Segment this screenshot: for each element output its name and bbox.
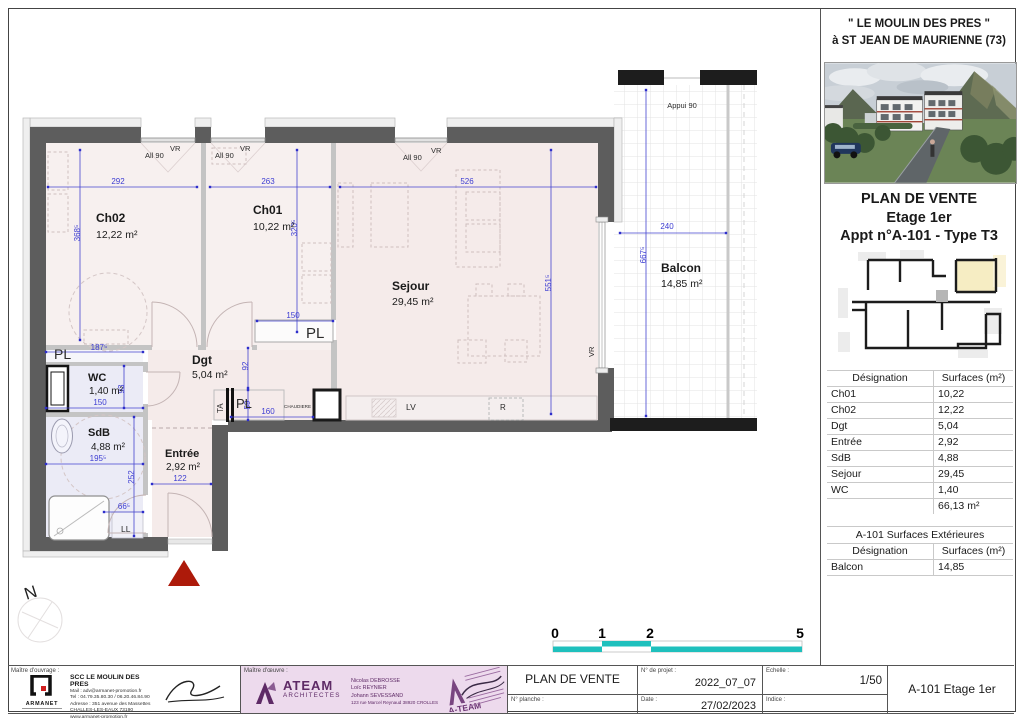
exterior-header-row: Désignation Surfaces (m²) <box>827 544 1013 560</box>
projet-value: 2022_07_07 <box>695 677 756 689</box>
col-surfaces: Surfaces (m²) <box>934 371 1013 386</box>
mo-line: Tel : 04.79.35.80.30 / 06.20.46.84.90 <box>70 695 156 701</box>
key-plan-drawing <box>838 250 1008 362</box>
ateam-stamp-icon: A-TEAM <box>441 667 507 712</box>
row-value: 29,45 <box>934 467 1013 482</box>
echelle-value: 1/50 <box>860 675 882 687</box>
col-designation: Désignation <box>827 544 934 559</box>
project-location: à ST JEAN DE MAURIENNE (73) <box>822 33 1016 50</box>
total-value: 66,13 m² <box>934 499 1013 514</box>
surfaces-tables: Désignation Surfaces (m²) Ch01 10,22 Ch0… <box>827 370 1013 576</box>
moe-name: Loïc REYNIER <box>351 685 446 692</box>
project-photo <box>824 62 1017 184</box>
cell-maitre-oeuvre: Maître d'œuvre : ATEAM ARCHITECTES Nicol… <box>240 666 507 713</box>
ref-value: A-101 Etage 1er <box>888 666 1016 713</box>
total-empty <box>827 499 934 514</box>
cell-maitre-ouvrage: Maître d'ouvrage : ARMANET SCC LE MOULIN… <box>8 666 240 713</box>
table-row: Dgt 5,04 <box>827 419 1013 435</box>
armanet-logo: ARMANET <box>22 675 62 709</box>
doc-floor: Etage 1er <box>822 209 1016 228</box>
table-row: Ch02 12,22 <box>827 403 1013 419</box>
cell-project-date: N° de projet : 2022_07_07 Date : 27/02/2… <box>637 666 762 713</box>
key-plan <box>838 250 1008 362</box>
table-row: SdB 4,88 <box>827 451 1013 467</box>
row-value: 12,22 <box>934 403 1013 418</box>
mo-company: SCC LE MOULIN DES PRES <box>70 674 156 688</box>
table-row: Entrée 2,92 <box>827 435 1013 451</box>
table-row: Ch01 10,22 <box>827 387 1013 403</box>
cell-scale-index: Echelle : 1/50 Indice : <box>762 666 887 713</box>
ateam-name: ATEAM <box>283 679 341 692</box>
table-row: Balcon 14,85 <box>827 560 1013 576</box>
col-surfaces: Surfaces (m²) <box>934 544 1013 559</box>
date-value: 27/02/2023 <box>701 700 756 712</box>
moe-address: 123 rue Marcel Reynaud 38920 CROLLES <box>351 700 446 706</box>
surfaces-header-row: Désignation Surfaces (m²) <box>827 370 1013 387</box>
projet-label: N° de projet : <box>641 668 676 674</box>
doc-title: PLAN DE VENTE <box>822 190 1016 209</box>
exterior-surfaces-title: A-101 Surfaces Extérieures <box>827 526 1013 544</box>
row-name: Sejour <box>827 467 934 482</box>
row-name: WC <box>827 483 934 498</box>
ateam-wordmark: ATEAM ARCHITECTES <box>283 679 341 699</box>
mo-details: SCC LE MOULIN DES PRES Mail : adv@armane… <box>70 674 156 718</box>
row-name: Entrée <box>827 435 934 450</box>
moe-label: Maître d'œuvre : <box>244 668 288 674</box>
doc-type-value: PLAN DE VENTE <box>508 666 637 693</box>
cell-doc-type: PLAN DE VENTE N° planche : <box>507 666 637 713</box>
ateam-logo-icon <box>253 679 279 706</box>
total-row: 66,13 m² <box>827 499 1013 514</box>
row-name: Ch01 <box>827 387 934 402</box>
mo-label: Maître d'ouvrage : <box>11 668 59 674</box>
col-designation: Désignation <box>827 371 934 386</box>
row-value: 5,04 <box>934 419 1013 434</box>
plan-de-vente-sheet: 292 263 526 368⁵ 320⁵ 551⁵ 240 667⁵ 150 … <box>0 0 1024 718</box>
row-value: 4,88 <box>934 451 1013 466</box>
moe-names: Nicolas DEBROSSE Loïc REYNIER Johann SEV… <box>351 678 446 706</box>
title-block: Maître d'ouvrage : ARMANET SCC LE MOULIN… <box>8 665 1014 714</box>
moe-name: Nicolas DEBROSSE <box>351 678 446 685</box>
row-value: 2,92 <box>934 435 1013 450</box>
armanet-wordmark: ARMANET <box>22 701 62 707</box>
row-value: 1,40 <box>934 483 1013 498</box>
signature-icon <box>158 672 230 708</box>
echelle-label: Echelle : <box>766 668 789 674</box>
moe-name: Johann SEVESSAND <box>351 693 446 700</box>
row-name: Balcon <box>827 560 934 575</box>
row-value: 10,22 <box>934 387 1013 402</box>
project-name: " LE MOULIN DES PRES " <box>822 16 1016 33</box>
date-label: Date : <box>641 697 657 703</box>
row-name: SdB <box>827 451 934 466</box>
doc-title-block: PLAN DE VENTE Etage 1er Appt n°A-101 - T… <box>822 190 1016 246</box>
row-name: Ch02 <box>827 403 934 418</box>
indice-label: Indice : <box>766 697 785 703</box>
row-name: Dgt <box>827 419 934 434</box>
row-value: 14,85 <box>934 560 1013 575</box>
table-row: Sejour 29,45 <box>827 467 1013 483</box>
cell-ref: A-101 Etage 1er <box>887 666 1016 713</box>
ateam-sub: ARCHITECTES <box>283 692 341 699</box>
project-title-block: " LE MOULIN DES PRES " à ST JEAN DE MAUR… <box>822 16 1016 49</box>
table-row: WC 1,40 <box>827 483 1013 499</box>
doc-apartment: Appt n°A-101 - Type T3 <box>822 227 1016 246</box>
ateam-logo <box>253 679 279 708</box>
photo-illustration <box>825 63 1016 183</box>
planche-label: N° planche : <box>511 697 544 703</box>
mo-line: www.armanet-promotion.fr <box>70 715 156 718</box>
